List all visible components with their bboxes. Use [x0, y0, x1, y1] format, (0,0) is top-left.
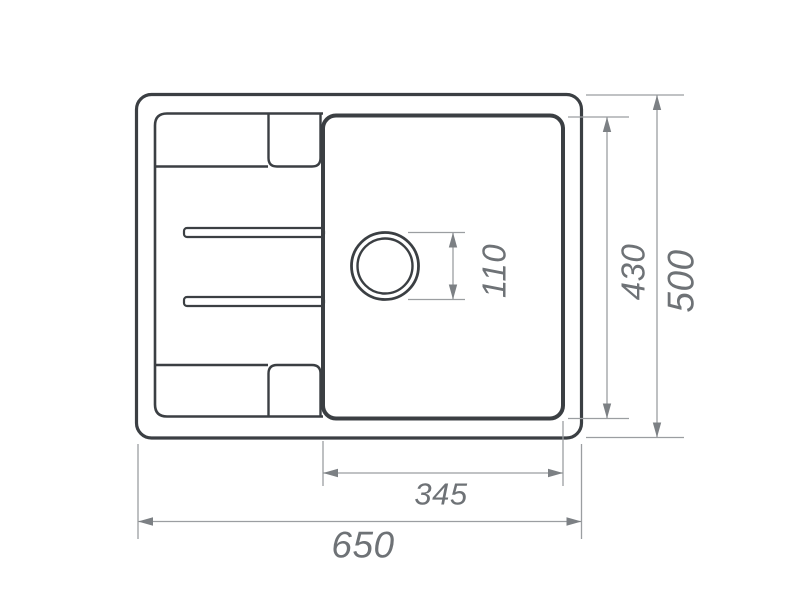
drain-hole-outer-circle	[352, 233, 419, 300]
arrow-430-down	[603, 404, 611, 419]
sink-artwork	[137, 95, 582, 439]
sink-technical-drawing: 650 345 500 430 110	[0, 0, 800, 600]
arrow-430-up	[603, 117, 611, 132]
arrow-345-right	[548, 469, 563, 477]
arrow-650-right	[567, 517, 582, 525]
bowl-outline	[323, 116, 563, 419]
dim-label-overall-depth: 500	[661, 249, 702, 312]
drainboard-top-tray	[269, 114, 321, 167]
dim-label-drain-hole: 110	[476, 244, 513, 298]
dim-label-overall-width: 650	[331, 525, 394, 566]
arrow-110-down	[449, 285, 457, 300]
sink-rim-outline	[137, 95, 582, 439]
arrow-345-left	[323, 469, 338, 477]
dim-label-bowl-depth: 430	[615, 244, 652, 301]
arrow-500-up	[653, 95, 661, 110]
arrow-650-left	[138, 517, 153, 525]
dimension-labels: 650 345 500 430 110	[331, 244, 701, 566]
drainboard-bottom-tray	[269, 365, 321, 417]
dimension-lines	[138, 95, 684, 539]
arrow-110-up	[449, 233, 457, 248]
drainboard-outline	[155, 114, 323, 417]
drainboard-slot-top	[184, 228, 324, 237]
arrow-500-down	[653, 423, 661, 438]
drainboard-slot-bottom	[184, 297, 324, 306]
drawing-canvas: 650 345 500 430 110	[0, 0, 800, 600]
dim-label-bowl-width: 345	[414, 477, 467, 512]
drain-hole-inner-circle	[358, 239, 413, 294]
